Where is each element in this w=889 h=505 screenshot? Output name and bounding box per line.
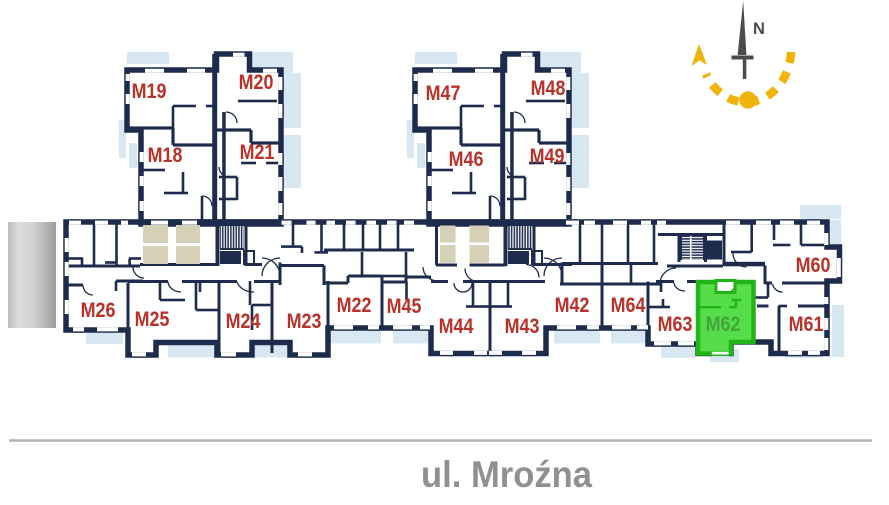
svg-text:M24: M24 [226,310,261,333]
svg-text:M63: M63 [658,313,693,336]
svg-text:M43: M43 [505,315,540,338]
svg-text:M25: M25 [135,308,170,331]
svg-text:M48: M48 [531,77,566,100]
svg-text:M47: M47 [426,82,461,105]
svg-text:M26: M26 [81,299,116,322]
svg-text:M60: M60 [796,254,831,277]
svg-text:M64: M64 [611,294,646,317]
svg-text:M20: M20 [239,71,274,94]
svg-text:M44: M44 [439,315,474,338]
svg-text:M62: M62 [706,313,741,336]
svg-text:M21: M21 [240,141,275,164]
svg-text:M19: M19 [132,80,167,103]
svg-text:N: N [753,20,765,38]
svg-text:M23: M23 [287,310,322,333]
svg-text:M49: M49 [530,145,565,168]
svg-text:M46: M46 [449,148,484,171]
svg-text:ul. Mroźna: ul. Mroźna [421,454,592,495]
svg-text:M61: M61 [789,313,824,336]
svg-text:M22: M22 [337,294,372,317]
svg-text:M42: M42 [555,294,590,317]
svg-text:M18: M18 [148,144,183,167]
svg-text:M45: M45 [387,295,422,318]
